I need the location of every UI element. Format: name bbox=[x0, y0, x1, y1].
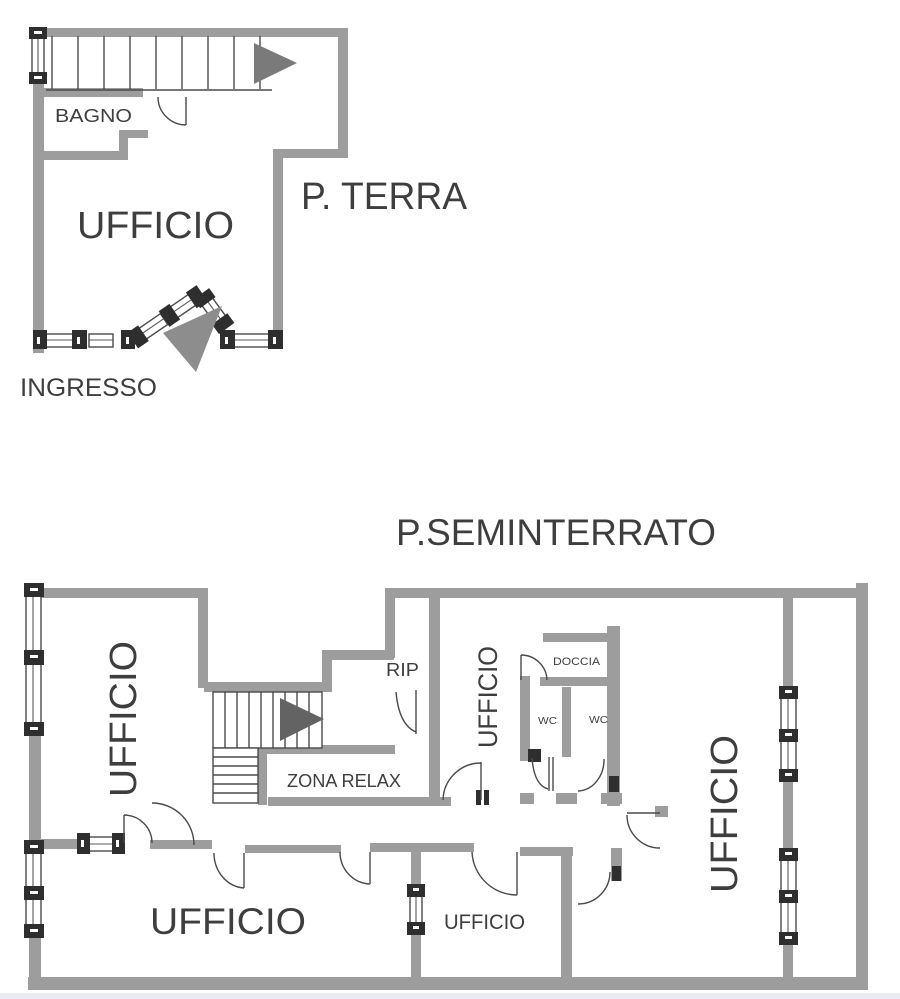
ingresso-label: INGRESSO bbox=[20, 374, 157, 402]
zona-relax-label: ZONA RELAX bbox=[287, 771, 401, 791]
floor-plan-page: { "ground_floor": { "title": "P. TERRA",… bbox=[0, 0, 900, 999]
ground-floor-plan: BAGNO UFFICIO P. TERRA INGRESSO bbox=[20, 27, 468, 402]
ufficio-bottom-large-label: UFFICIO bbox=[150, 901, 306, 942]
inner-wall-window-bottom bbox=[779, 848, 798, 945]
partition-window bbox=[407, 884, 425, 935]
rip-label: RIP bbox=[386, 660, 419, 680]
basement-floor-plan: P.SEMINTERRATO bbox=[24, 512, 868, 990]
wc-left-label: WC bbox=[538, 716, 557, 727]
ground-staircase bbox=[46, 36, 297, 90]
bagno-door bbox=[158, 97, 186, 125]
ground-left-window bbox=[29, 27, 47, 84]
ground-ufficio-label: UFFICIO bbox=[77, 205, 234, 247]
stair-direction-arrow-icon bbox=[254, 43, 297, 84]
midwall-window bbox=[77, 833, 125, 854]
ufficio-left-label: UFFICIO bbox=[103, 641, 145, 797]
basement-floor-title: P.SEMINTERRATO bbox=[396, 512, 716, 553]
ufficio-middle-label: UFFICIO bbox=[473, 646, 503, 748]
ufficio-bottom-small-label: UFFICIO bbox=[444, 911, 525, 934]
bagno-label: BAGNO bbox=[55, 106, 132, 126]
ground-floor-title: P. TERRA bbox=[301, 176, 468, 218]
ufficio-right-label: UFFICIO bbox=[704, 735, 746, 893]
ground-labels: BAGNO UFFICIO P. TERRA INGRESSO bbox=[20, 106, 468, 402]
basement-left-window-top bbox=[24, 583, 44, 736]
basement-left-window-bottom bbox=[24, 840, 44, 938]
wc-right-label: WC bbox=[589, 715, 608, 726]
page-edge-artifact bbox=[0, 993, 900, 999]
doccia-label: DOCCIA bbox=[553, 656, 601, 668]
entrance-window-band bbox=[33, 285, 283, 372]
inner-wall-window-top bbox=[779, 686, 798, 782]
